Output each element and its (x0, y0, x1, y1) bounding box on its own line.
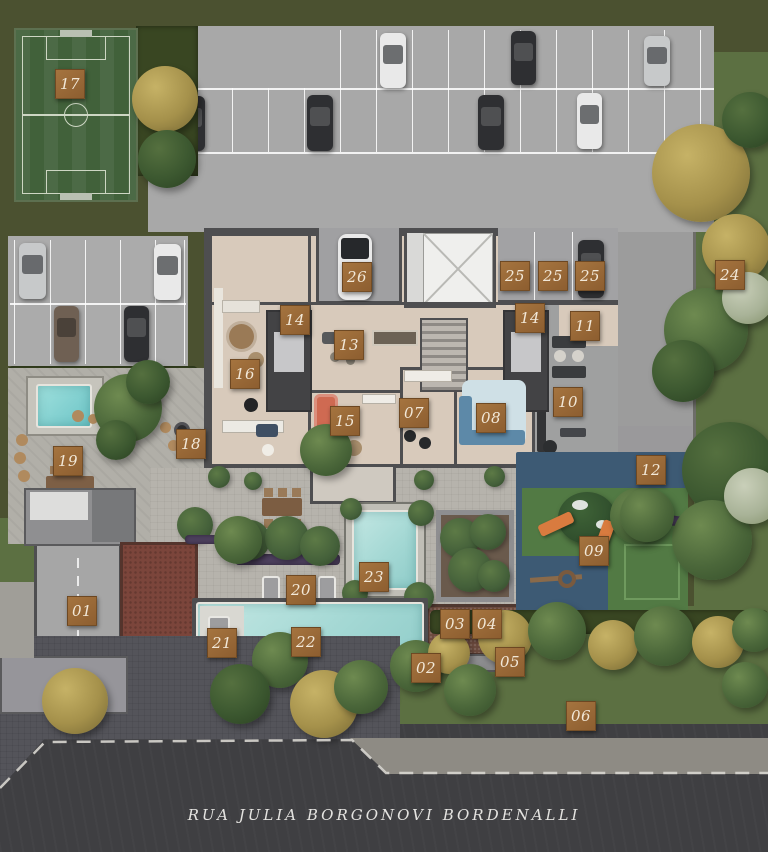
pouf (72, 410, 84, 422)
unit-marker-13[interactable]: 13 (334, 330, 364, 360)
shrub (414, 470, 434, 490)
unit-marker-01[interactable]: 01 (67, 596, 97, 626)
tree (652, 340, 714, 402)
unit-marker-19[interactable]: 19 (53, 446, 83, 476)
unit-marker-21[interactable]: 21 (207, 628, 237, 658)
shrub (470, 514, 506, 550)
tree (132, 66, 198, 132)
chair (404, 430, 416, 442)
site-plan: RUA JULIA BORGONOVI BORDENALLI 010203040… (0, 0, 768, 852)
field-goal (60, 30, 92, 37)
weight-bench (560, 428, 586, 437)
gym-ball (572, 350, 584, 362)
unit-marker-20[interactable]: 20 (286, 575, 316, 605)
wall (311, 390, 403, 393)
pouf (18, 470, 30, 482)
shrub (300, 526, 340, 566)
parking-line (160, 152, 714, 154)
car (644, 36, 670, 86)
unit-marker-14[interactable]: 14 (515, 303, 545, 333)
unit-marker-14[interactable]: 14 (280, 305, 310, 335)
parking-line (534, 232, 535, 300)
coffee-table (262, 444, 274, 456)
unit-marker-17[interactable]: 17 (55, 69, 85, 99)
gate-house-roof-dark (92, 490, 134, 542)
shrub (478, 560, 510, 592)
unit-marker-06[interactable]: 06 (566, 701, 596, 731)
shrub (340, 498, 362, 520)
plaza-table (262, 498, 302, 516)
unit-marker-22[interactable]: 22 (291, 627, 321, 657)
pouf (14, 452, 26, 464)
tree (620, 488, 674, 542)
field-goal (60, 193, 92, 200)
unit-marker-04[interactable]: 04 (472, 609, 502, 639)
field-penalty-box (46, 170, 106, 194)
unit-marker-26[interactable]: 26 (342, 262, 372, 292)
car (511, 31, 536, 85)
car (380, 33, 406, 88)
spinner (558, 570, 576, 588)
unit-marker-25[interactable]: 25 (575, 261, 605, 291)
elevator-cab (511, 332, 541, 372)
unit-marker-16[interactable]: 16 (230, 359, 260, 389)
parking-line (10, 303, 186, 305)
car (54, 306, 79, 362)
parking-line (556, 30, 557, 152)
car (307, 95, 333, 151)
tree (126, 360, 170, 404)
parking-line (85, 240, 86, 364)
chair (264, 488, 273, 497)
kitchen-island (222, 300, 260, 313)
unit-marker-10[interactable]: 10 (553, 387, 583, 417)
shrub (244, 472, 262, 490)
pouf (16, 434, 28, 446)
play-dome-cap (572, 500, 588, 510)
sofa (256, 424, 278, 437)
play-square-outline (624, 544, 680, 600)
unit-marker-12[interactable]: 12 (636, 455, 666, 485)
car (478, 95, 504, 150)
unit-marker-18[interactable]: 18 (176, 429, 206, 459)
unit-marker-08[interactable]: 08 (476, 403, 506, 433)
dining-table-round (229, 324, 254, 349)
car (124, 306, 149, 362)
unit-marker-24[interactable]: 24 (715, 260, 745, 290)
chair (278, 488, 287, 497)
parking-line (412, 30, 413, 152)
canopy-x-brace (423, 233, 493, 305)
parking-line (268, 88, 269, 152)
tree (214, 516, 262, 564)
elevator-cab (274, 332, 304, 372)
car (577, 93, 602, 149)
kids-sofa (459, 396, 472, 440)
spa-pool (36, 384, 92, 428)
parking-line (14, 240, 15, 364)
treadmill (552, 366, 586, 378)
unit-marker-25[interactable]: 25 (538, 261, 568, 291)
parking-line (448, 30, 449, 152)
parking-line (628, 30, 629, 152)
unit-marker-11[interactable]: 11 (570, 311, 600, 341)
field-penalty-box (46, 36, 106, 60)
car (154, 244, 181, 300)
unit-marker-05[interactable]: 05 (495, 647, 525, 677)
parking-line (232, 88, 233, 152)
tree (96, 420, 136, 460)
armchair (244, 398, 258, 412)
parking-line (50, 240, 51, 364)
tree (138, 130, 196, 188)
gym-ball (554, 350, 566, 362)
reception-desk (372, 330, 418, 346)
street-name-label: RUA JULIA BORGONOVI BORDENALLI (0, 806, 768, 824)
cabinet (362, 394, 396, 404)
field-center-circle (64, 103, 88, 127)
parking-line (184, 240, 185, 364)
unit-marker-07[interactable]: 07 (399, 398, 429, 428)
unit-marker-23[interactable]: 23 (359, 562, 389, 592)
parking-line (196, 88, 714, 90)
car (19, 243, 46, 299)
unit-marker-09[interactable]: 09 (579, 536, 609, 566)
parking-line (340, 30, 341, 152)
unit-marker-15[interactable]: 15 (330, 406, 360, 436)
unit-marker-03[interactable]: 03 (440, 609, 470, 639)
unit-marker-25[interactable]: 25 (500, 261, 530, 291)
shrub (408, 500, 434, 526)
parking-line (120, 240, 121, 364)
parking-line (376, 30, 377, 152)
shrub (208, 466, 230, 488)
chair (419, 437, 431, 449)
chair (160, 422, 171, 433)
parking-line (572, 232, 573, 300)
pantry-counter (404, 370, 452, 382)
shrub (484, 466, 505, 487)
parking-line (304, 88, 305, 152)
chair (292, 488, 301, 497)
unit-marker-02[interactable]: 02 (411, 653, 441, 683)
gate-house-roof (30, 492, 88, 520)
